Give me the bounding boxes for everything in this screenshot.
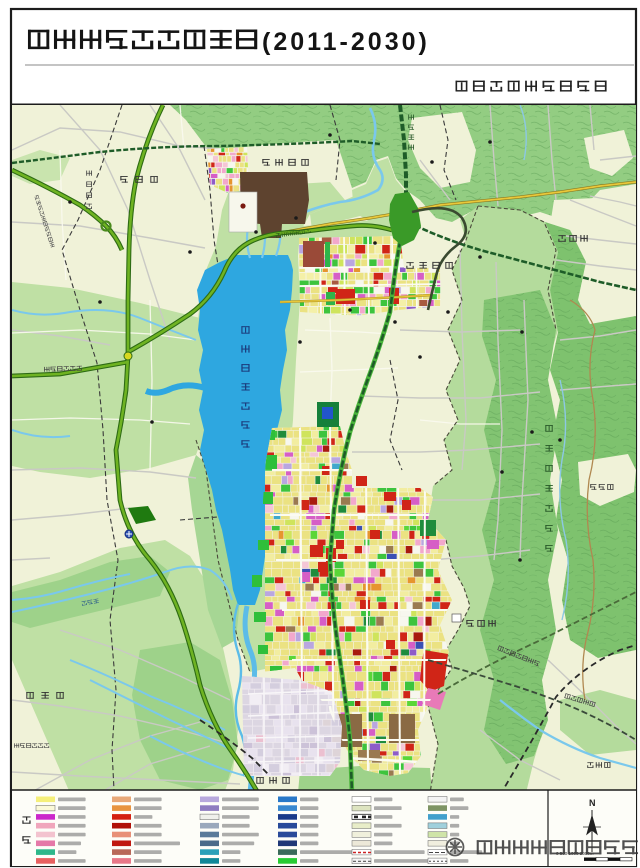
svg-text:(2011-2030): (2011-2030)	[262, 28, 430, 56]
svg-text:N: N	[589, 798, 596, 808]
